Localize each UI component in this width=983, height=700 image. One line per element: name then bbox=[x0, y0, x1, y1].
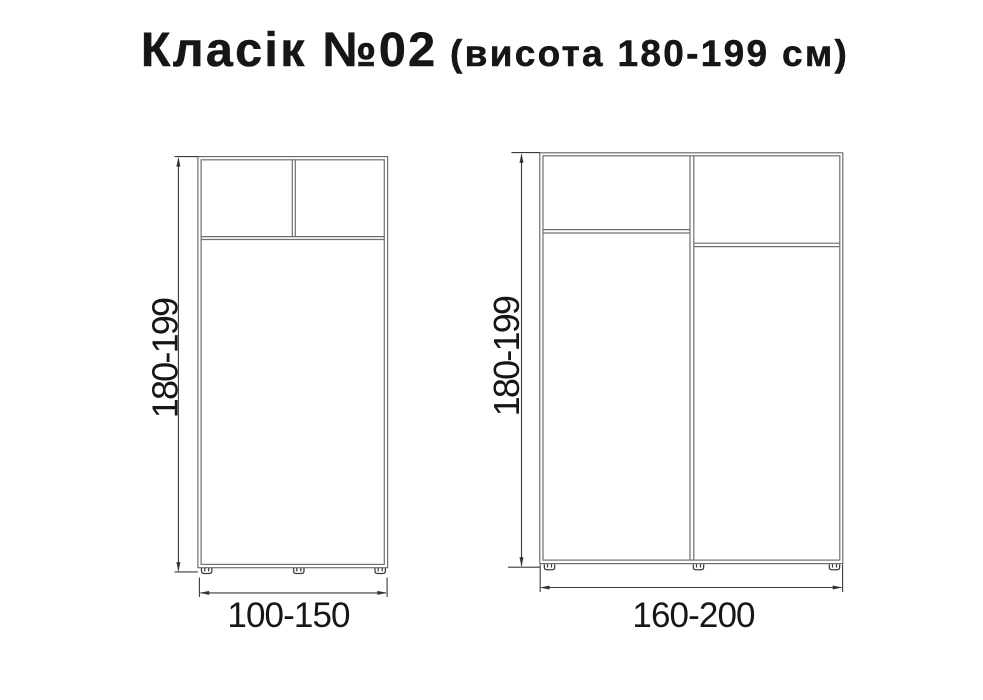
svg-text:180-199: 180-199 bbox=[144, 298, 185, 418]
svg-text:Класік №02 (висота 180-199 см): Класік №02 (висота 180-199 см) bbox=[141, 23, 849, 77]
svg-text:180-199: 180-199 bbox=[486, 296, 527, 416]
svg-text:160-200: 160-200 bbox=[632, 596, 755, 635]
svg-text:100-150: 100-150 bbox=[227, 596, 350, 635]
